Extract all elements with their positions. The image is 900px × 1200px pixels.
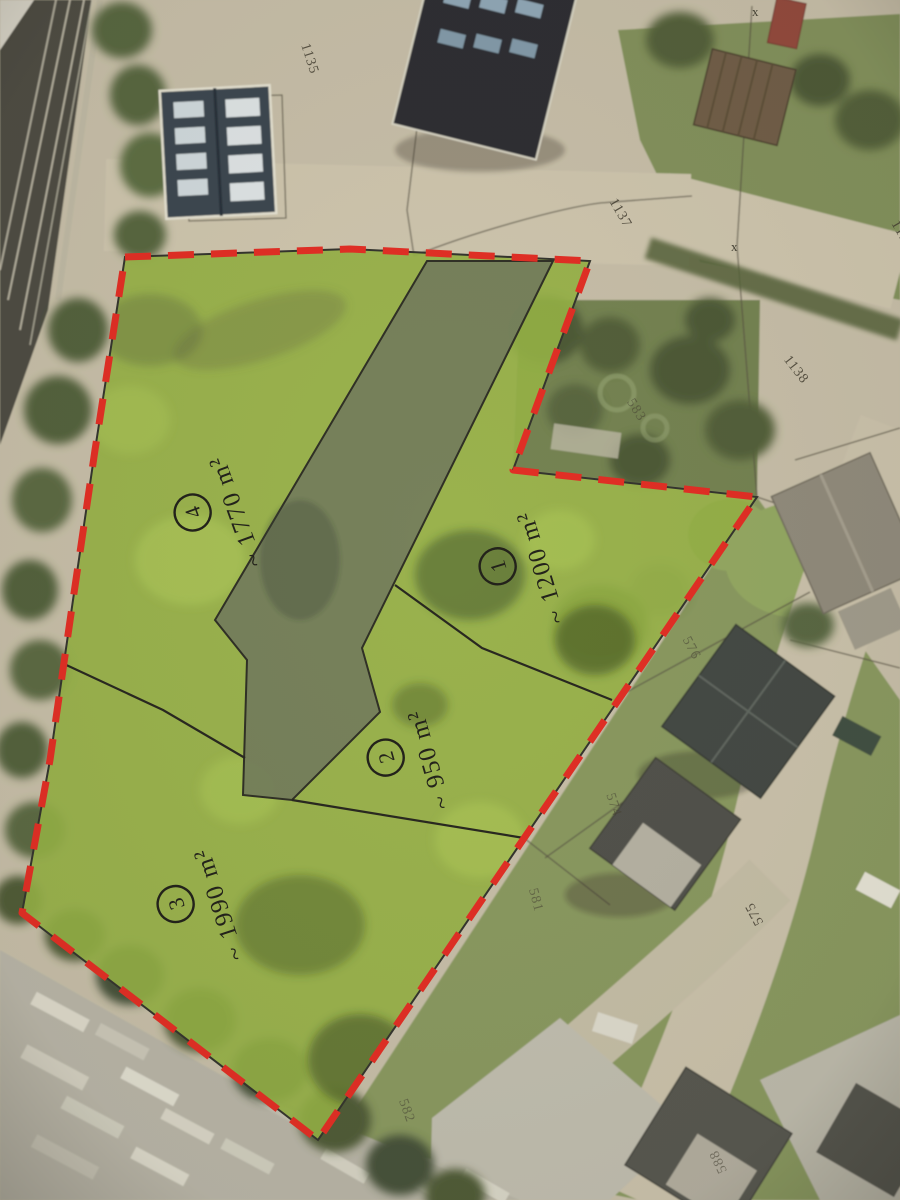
vignette — [0, 0, 900, 1200]
scanned-aerial-parcel-plan: 1 ~ 1200 m² 2 ~ 950 m² 3 ~ 1990 m² 4 ~ 1… — [0, 0, 900, 1200]
aerial-map: 1 ~ 1200 m² 2 ~ 950 m² 3 ~ 1990 m² 4 ~ 1… — [0, 0, 900, 1200]
